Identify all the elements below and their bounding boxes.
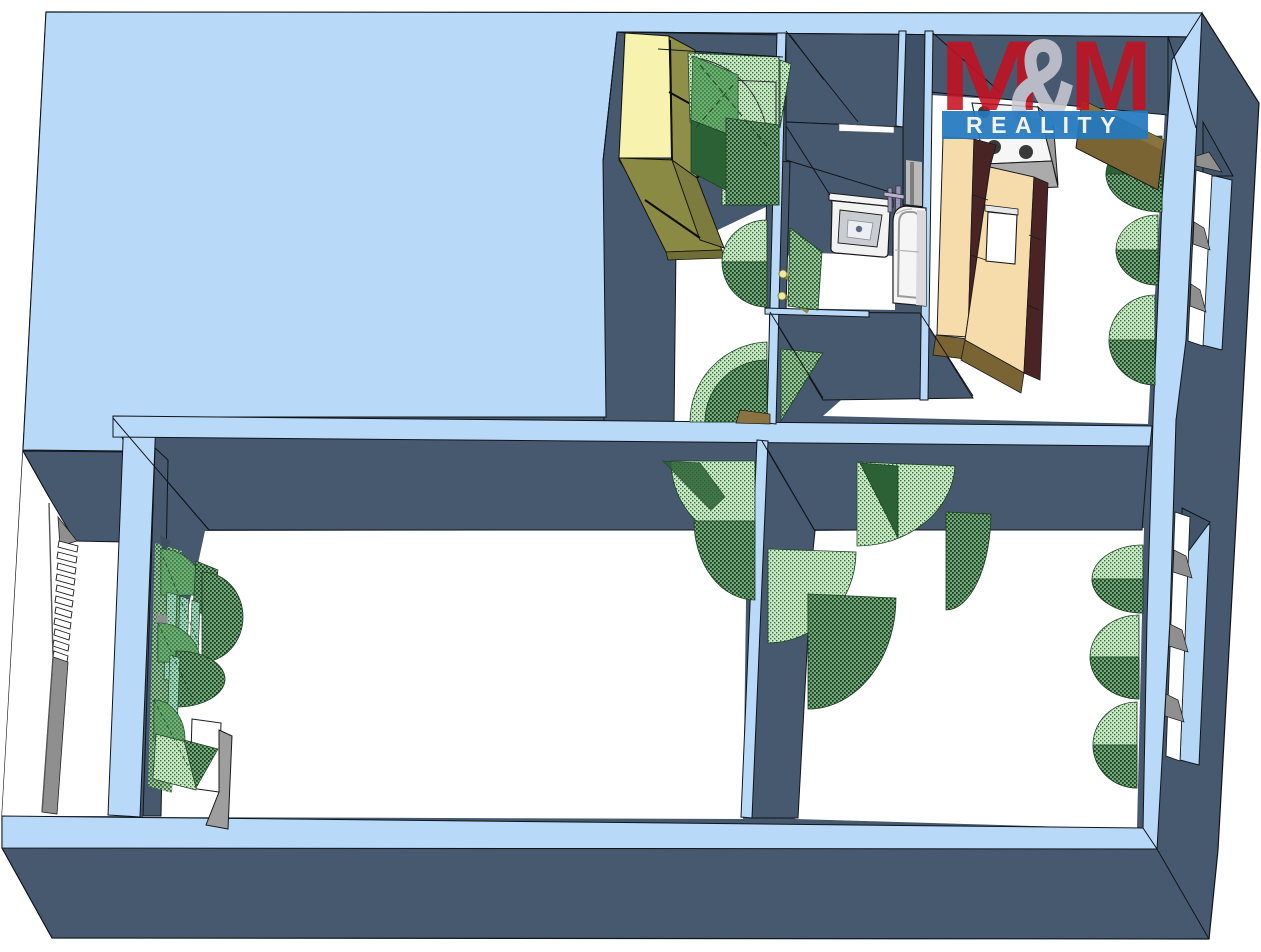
svg-text:REALITY: REALITY <box>966 112 1124 138</box>
